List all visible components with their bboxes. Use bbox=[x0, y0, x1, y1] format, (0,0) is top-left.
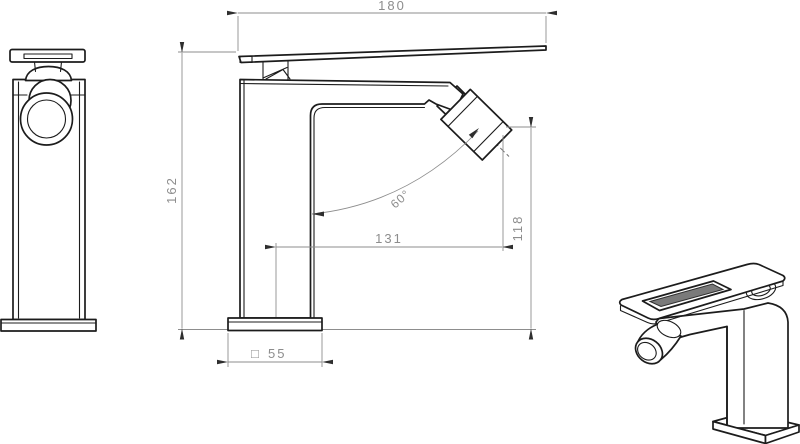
side-lever-plate bbox=[239, 46, 546, 63]
square-symbol: □ bbox=[251, 346, 261, 361]
side-body-inner-contour bbox=[314, 108, 425, 319]
dim-outlet-height-label: 118 bbox=[510, 215, 525, 242]
side-handle-pivot bbox=[263, 68, 290, 80]
dimension-outlet-height: 118 bbox=[506, 127, 536, 329]
front-lever-plate bbox=[10, 50, 85, 63]
dim-total-height-label: 162 bbox=[164, 176, 179, 204]
dimension-spout-length: 180 bbox=[238, 0, 546, 51]
dim-spout-reach-label: 131 bbox=[375, 231, 403, 246]
front-nozzle-face bbox=[21, 93, 73, 145]
dimension-spray-angle: 60° bbox=[312, 128, 479, 217]
front-base bbox=[1, 320, 96, 332]
perspective-view bbox=[620, 264, 799, 444]
side-body bbox=[240, 80, 463, 319]
dimension-base-size: □ 55 bbox=[228, 333, 322, 367]
front-dome bbox=[26, 67, 72, 81]
technical-drawing-page: 180 162 131 118 60° □ 55 bbox=[0, 0, 800, 444]
dim-spray-angle-label: 60° bbox=[388, 187, 413, 211]
dim-spout-length-label: 180 bbox=[378, 0, 406, 13]
perspective-aerator bbox=[630, 317, 683, 369]
side-base bbox=[228, 318, 322, 331]
perspective-body bbox=[656, 303, 788, 428]
dim-base-size-label: 55 bbox=[268, 346, 286, 361]
dimension-total-height: 162 bbox=[164, 52, 236, 329]
faucet-technical-drawing: 180 162 131 118 60° □ 55 bbox=[0, 0, 800, 444]
front-view bbox=[1, 50, 96, 332]
